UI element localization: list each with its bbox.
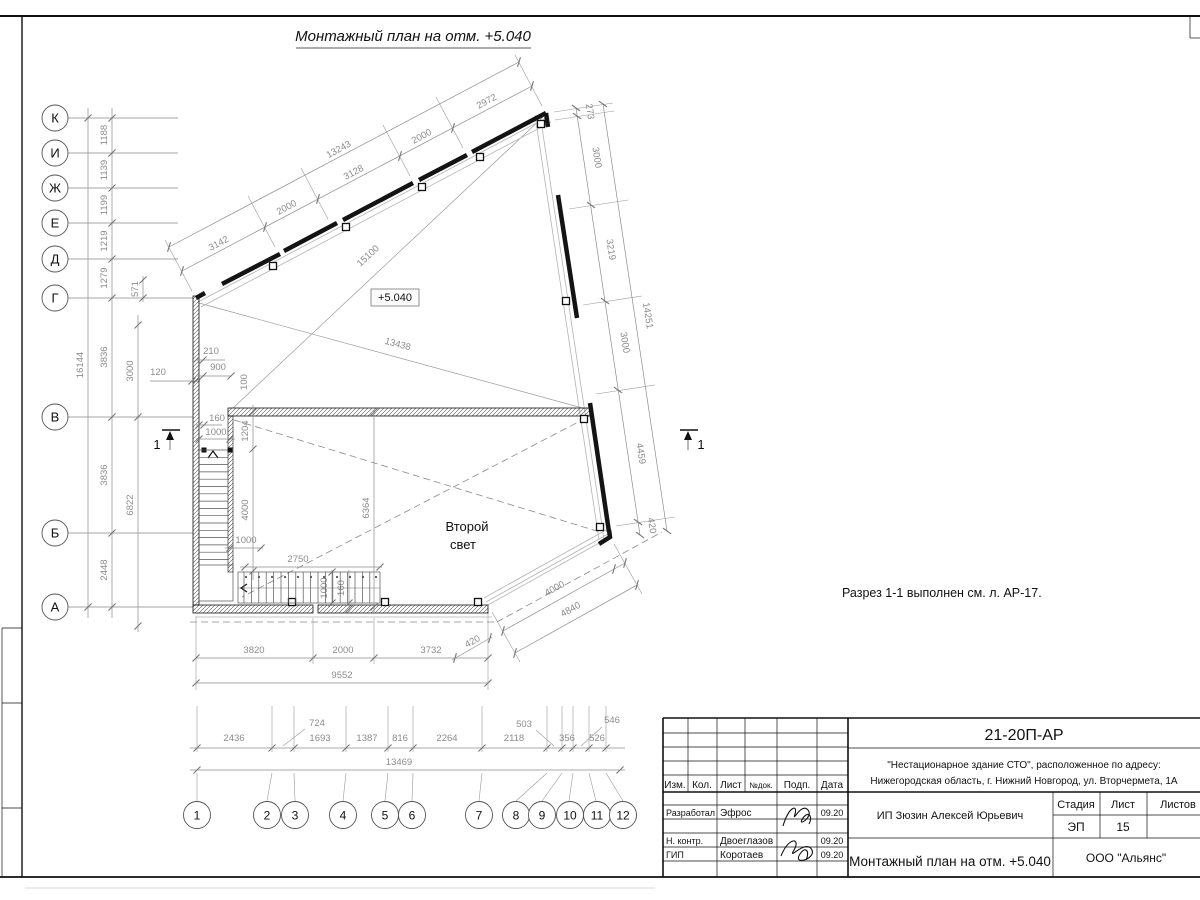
axis-label: 9: [539, 809, 546, 823]
col-header: №док.: [749, 781, 772, 790]
dim-label: 2264: [436, 733, 457, 744]
axis-label: 7: [476, 809, 483, 823]
dim-label: 3142: [207, 234, 231, 254]
dim-label: 420: [463, 633, 482, 650]
dim-label: 3820: [243, 645, 264, 656]
row-role: Н. контр.: [666, 836, 703, 846]
col-header: Подп.: [784, 780, 811, 791]
dim-label: 503: [516, 719, 532, 730]
dim-label: 6364: [361, 497, 372, 518]
dim-label: 571: [130, 281, 141, 297]
dim-label: 2000: [275, 198, 299, 218]
bracket-markers: [202, 121, 604, 606]
dim-label: 2972: [475, 92, 499, 112]
company-name: ООО "Альянс": [1086, 851, 1166, 865]
dim-label: 9552: [331, 670, 352, 681]
dim-label: 4000: [240, 499, 251, 520]
axis-label: 8: [513, 809, 520, 823]
second-light-label: свет: [450, 537, 476, 552]
dim-label: 1139: [99, 160, 110, 180]
dim-label: 3836: [99, 346, 110, 367]
dim-label: 4840: [559, 600, 583, 620]
page-title: Монтажный план на отм. +5.040: [295, 28, 531, 45]
dim-label: 13469: [386, 757, 412, 768]
dim-label: 3128: [342, 163, 366, 183]
dim-label: 120: [150, 367, 166, 378]
col-header: Лист: [720, 780, 742, 791]
second-light-label: Второй: [446, 519, 489, 534]
dim-label: 6822: [125, 494, 136, 515]
project-name-line1: "Нестационарное здание СТО", расположенн…: [887, 760, 1160, 771]
row-name: Коротаев: [720, 850, 763, 861]
bottom-axis-area: 2436 724 1693 1387 816 2264 2118 503 356…: [184, 706, 637, 829]
left-axis-grid: К И Ж Е Д Г В Б А: [42, 105, 193, 620]
dim-label: 356: [559, 733, 575, 744]
building-plan: +5.040 Второй свет 15100 13438: [190, 113, 662, 622]
col-header: Кол.: [692, 780, 712, 791]
dim-label: 900: [210, 362, 226, 373]
bottom-axis-bubbles: 1 2 3 4 5 6 7 8 9 10 11 12: [184, 802, 637, 829]
dim-label: 1219: [99, 230, 110, 251]
dim-label: 724: [309, 718, 325, 729]
axis-label: 4: [340, 809, 347, 823]
dim-label: 546: [604, 715, 620, 726]
axis-label: В: [51, 410, 60, 425]
dim-label: 1199: [99, 195, 110, 215]
dim-label: 273: [583, 103, 596, 120]
doc-number: 21-20П-АР: [984, 727, 1063, 744]
dim-label: 1000: [235, 535, 256, 546]
row-date: 09.20: [821, 836, 844, 846]
stage-header: Стадия: [1057, 799, 1095, 811]
top-dimension-chains: 3142 2000 3128 2000 2972 13243: [165, 55, 542, 291]
axis-label: Ж: [49, 181, 61, 196]
axis-label: К: [51, 111, 59, 126]
dim-label: 2448: [99, 559, 110, 580]
dim-label: 816: [392, 733, 408, 744]
dim-label: 1204: [240, 420, 251, 441]
dim-label: 3000: [125, 360, 136, 381]
row-date: 09.20: [821, 808, 844, 818]
elevation-label: +5.040: [378, 292, 412, 304]
dim-label: 16144: [75, 352, 86, 378]
dim-label: 4459: [633, 442, 647, 465]
elevation-mark: +5.040: [371, 289, 419, 306]
bottom-dimension-chains: 3820 2000 3732 9552: [196, 612, 488, 690]
dim-label: 2000: [410, 127, 434, 147]
dim-label: 1000: [319, 577, 330, 598]
dim-label: 3836: [99, 464, 110, 485]
dim-label: 14251: [640, 302, 655, 330]
left-axis-bubbles: К И Ж Е Д Г В Б А: [42, 105, 68, 620]
dim-label: 1387: [356, 733, 377, 744]
axis-label: 5: [382, 809, 389, 823]
drawing-sheet: Монтажный план на отм. +5.040 К И Ж Е Д: [0, 0, 1200, 900]
axis-label: И: [50, 146, 59, 161]
dim-label: 3732: [420, 645, 441, 656]
dim-label: 420: [645, 517, 658, 534]
axis-label: 6: [409, 809, 416, 823]
dim-label: 1279: [99, 267, 110, 288]
dim-label: 2000: [332, 645, 353, 656]
dim-label: 2436: [223, 733, 244, 744]
section-label: 1: [697, 437, 704, 452]
dim-label: 160: [209, 413, 225, 424]
stage-value: ЭП: [1067, 820, 1084, 834]
axis-label: 11: [591, 809, 604, 823]
dim-label: 4000: [543, 579, 567, 599]
section-marks: 1 1: [153, 430, 704, 452]
right-dimension-chains: 273 3000 3219 3000 4459 420 14251: [554, 103, 675, 535]
dim-label: 3000: [589, 146, 603, 169]
col-header: Дата: [821, 780, 844, 791]
axis-label: Г: [51, 291, 58, 306]
sheet-canvas: Монтажный план на отм. +5.040 К И Ж Е Д: [0, 0, 1200, 900]
staircase: [199, 451, 380, 603]
sheet-header: Лист: [1111, 799, 1135, 811]
sheets-header: Листов: [1160, 799, 1196, 811]
axis-label: 12: [616, 809, 630, 823]
dim-label: 1000: [205, 427, 226, 438]
title-block: 21-20П-АР "Нестационарное здание СТО", р…: [663, 718, 1200, 877]
axis-label: 2: [264, 809, 271, 823]
row-role: Разработал: [666, 808, 715, 818]
axis-label: А: [51, 600, 60, 615]
dim-label: 160: [336, 580, 347, 596]
dim-label: 2750: [287, 554, 308, 565]
drawing-title: Монтажный план на отм. +5.040: [295, 28, 531, 48]
axis-label: 1: [194, 809, 201, 823]
signature-icon: [781, 841, 812, 860]
axis-label: 10: [563, 809, 577, 823]
dim-label: 1188: [99, 125, 110, 145]
row-name: Эфрос: [720, 807, 752, 819]
sheet-number: 15: [1116, 820, 1130, 834]
axis-label: Д: [51, 252, 60, 267]
axis-label: Е: [51, 216, 60, 231]
dim-label: 1693: [309, 733, 330, 744]
section-label: 1: [153, 437, 160, 452]
section-note: Разрез 1-1 выполнен см. л. АР-17.: [842, 586, 1042, 600]
left-dimension-chains: 1188 1139 1199 1219 1279 16144 3836 3836…: [75, 108, 200, 632]
dim-label: 526: [589, 733, 605, 744]
client-name: ИП Зюзин Алексей Юрьевич: [877, 810, 1024, 822]
dim-label: 15100: [355, 243, 382, 269]
row-date: 09.20: [821, 850, 844, 860]
dim-label: 3000: [617, 331, 631, 354]
axis-label: 3: [292, 809, 299, 823]
dim-label: 210: [203, 346, 219, 357]
dim-label: 2118: [504, 733, 524, 744]
dim-label: 3219: [603, 238, 617, 261]
row-name: Двоеглазов: [720, 836, 773, 847]
dim-label: 13438: [383, 336, 411, 353]
row-role: ГИП: [666, 850, 684, 860]
dim-label: 100: [239, 374, 250, 390]
axis-label: Б: [51, 526, 60, 541]
col-header: Изм.: [664, 780, 685, 791]
project-name-line2: Нижегородская область, г. Нижний Новгоро…: [870, 775, 1178, 787]
drawing-name: Монтажный план на отм. +5.040: [849, 854, 1051, 869]
signature-icon: [783, 808, 811, 826]
